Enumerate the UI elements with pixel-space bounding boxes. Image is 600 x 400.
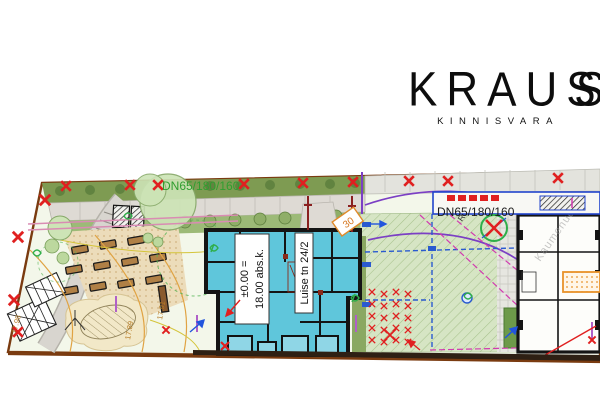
- site-plan: 17.98 17.89 17.91 R6.0: [0, 0, 600, 400]
- pavement-top-right: [365, 169, 600, 194]
- level-label-top: ±0.00 =: [239, 261, 251, 298]
- level-label-bottom: 18.00 abs.k.: [254, 249, 266, 309]
- logo-letters: KRAU: [408, 63, 566, 117]
- pipe-label-top: DN65/180/160: [162, 179, 240, 193]
- logo-wordmark: KRAUSS: [408, 66, 588, 114]
- logo-subtitle: KINNISVARA: [408, 116, 588, 127]
- pipe-label-right: DN65/180/160: [437, 205, 515, 219]
- orange-terrace: [563, 272, 600, 292]
- logo-s-second: S: [572, 66, 600, 114]
- kraus-logo: KRAUSS KINNISVARA: [408, 68, 588, 127]
- driveway: [300, 202, 338, 230]
- page: KRAUSS KINNISVARA: [0, 0, 600, 400]
- address-label: Luise tn 24/2: [299, 242, 311, 305]
- address-label-box: Luise tn 24/2: [295, 233, 313, 313]
- level-label-box: ±0.00 = 18.00 abs.k.: [235, 234, 269, 324]
- playground: [65, 294, 148, 351]
